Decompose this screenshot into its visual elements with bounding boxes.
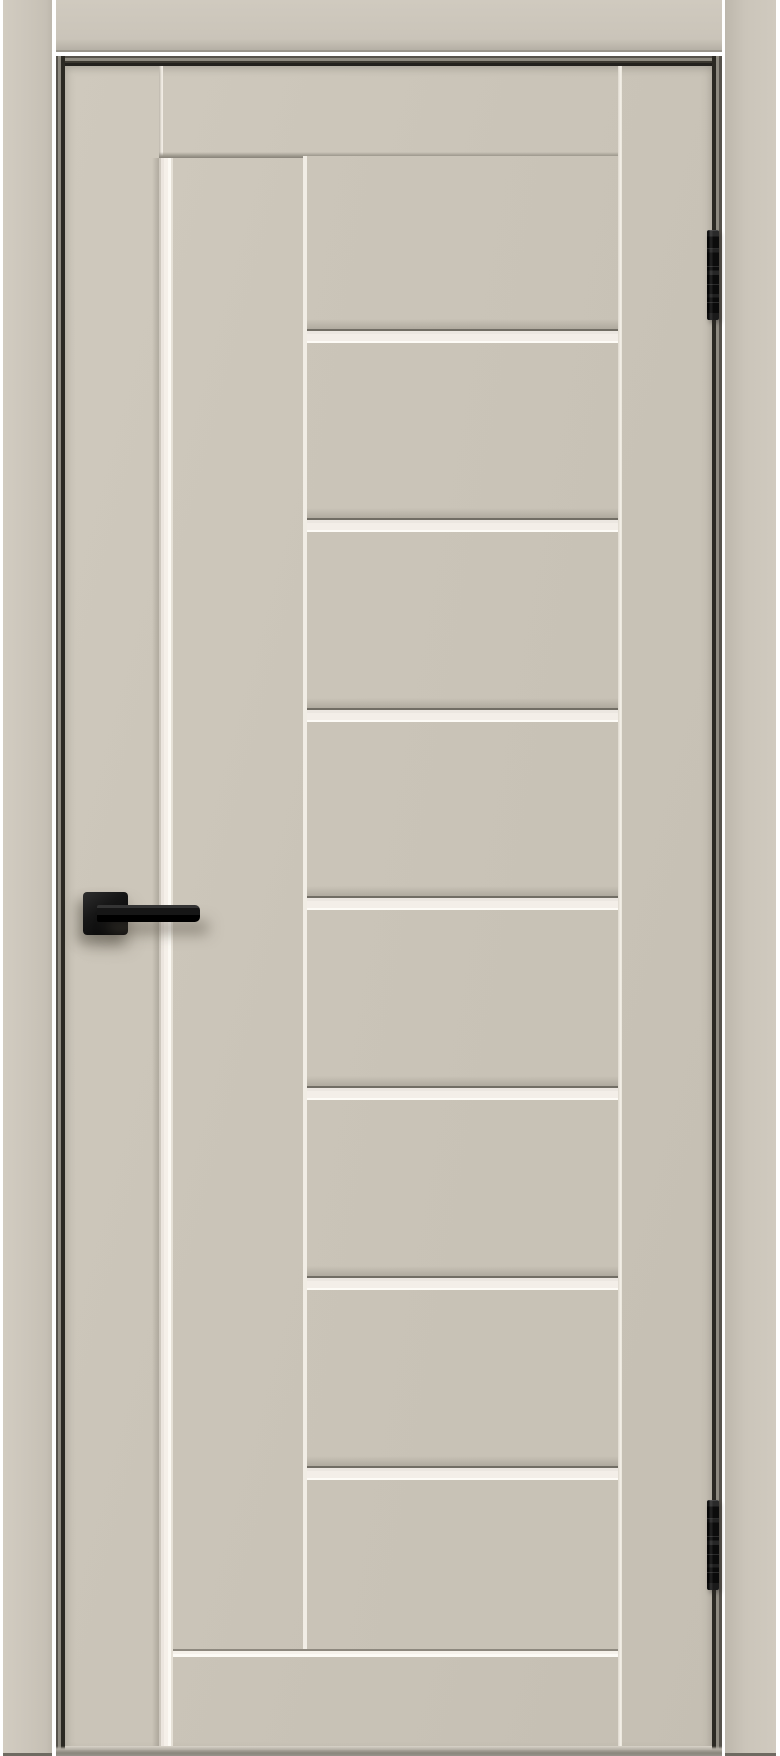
- casing-strip-top: [56, 0, 722, 52]
- casing-strip-right: [725, 0, 776, 1756]
- stile-rail-joint: [159, 66, 163, 158]
- door-bottom-edge: [65, 1746, 712, 1750]
- horizontal-glass-insert-5: [307, 1086, 618, 1100]
- horizontal-glass-insert-6: [307, 1276, 618, 1290]
- horizontal-glass-insert-2: [307, 518, 618, 532]
- horizontal-glass-insert-4: [307, 896, 618, 910]
- bottom-rail-top-edge: [173, 1647, 618, 1657]
- casing-strip-left: [3, 0, 52, 1756]
- frame-reveal-top: [56, 56, 722, 66]
- hinge-top: [707, 230, 719, 320]
- horizontal-glass-insert-3: [307, 708, 618, 722]
- door-handle-lever: [97, 905, 200, 922]
- horizontal-glass-insert-1: [307, 329, 618, 343]
- vertical-glass-insert: [159, 158, 173, 1750]
- right-stile-joint: [618, 66, 622, 1750]
- hinge-bottom: [707, 1500, 719, 1590]
- horizontal-glass-insert-7: [307, 1466, 618, 1480]
- door-product-photo: [0, 0, 780, 1756]
- glazed-panel-column: [303, 156, 618, 1650]
- frame-reveal-left: [56, 56, 65, 1756]
